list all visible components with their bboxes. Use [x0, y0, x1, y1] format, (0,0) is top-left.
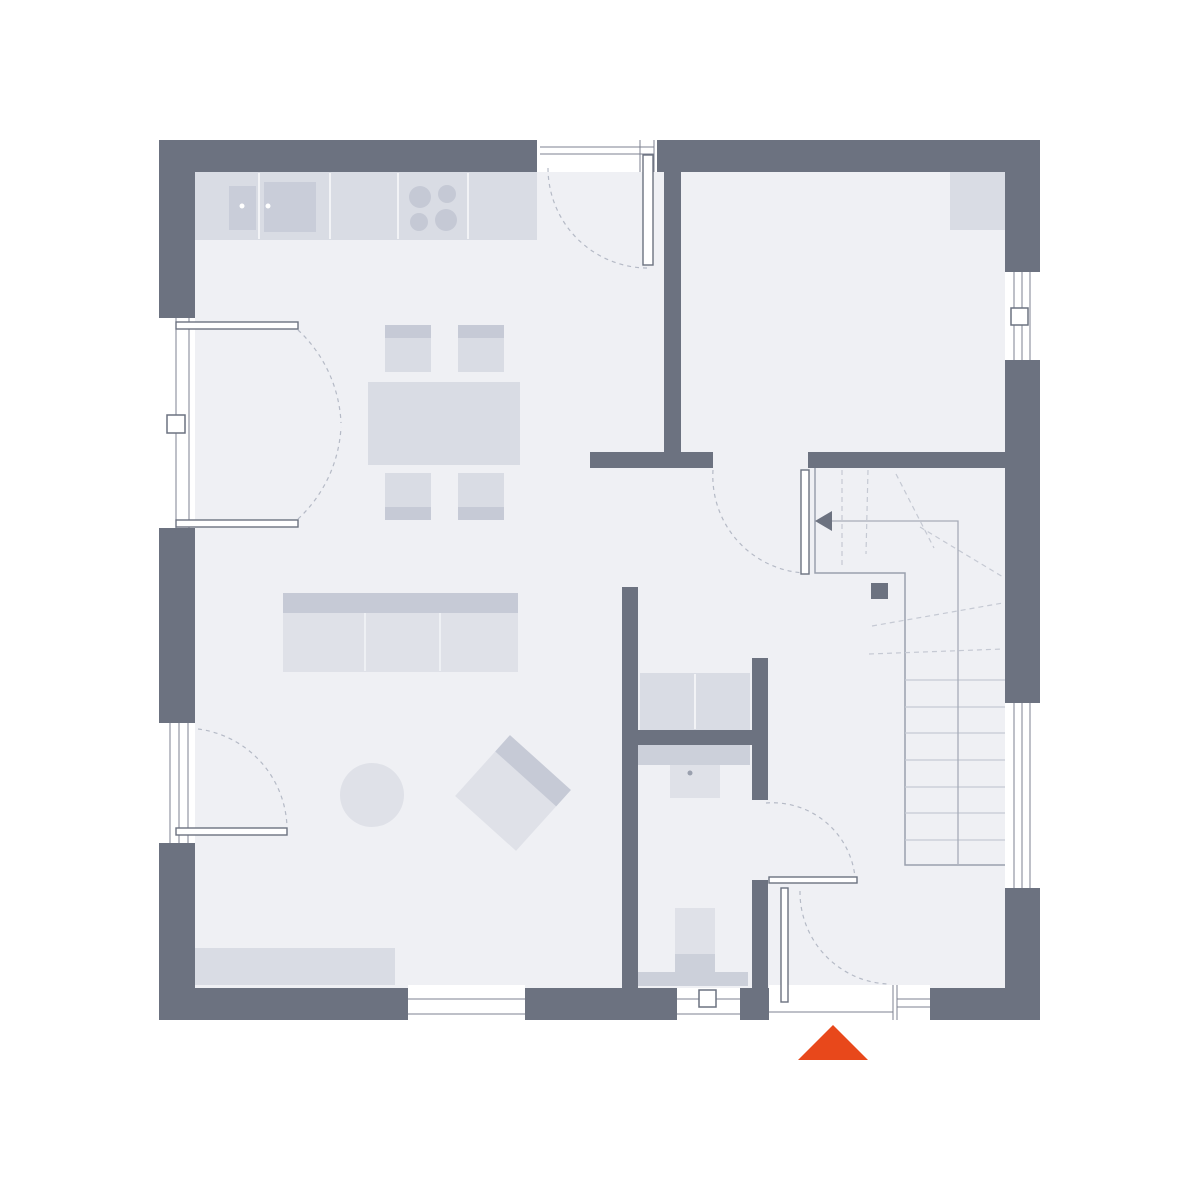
window-right-upper-symbol [1011, 308, 1028, 325]
wall-right-upper [1005, 140, 1040, 272]
window-left-lower [160, 723, 195, 843]
stair-newel-post [871, 583, 888, 599]
cooktop-burner-3 [410, 213, 428, 231]
sink-drain-left [240, 204, 245, 209]
window-wc-symbol [699, 990, 716, 1007]
wc-washbasin [670, 765, 720, 798]
wc-vanity-counter [638, 745, 750, 765]
wc-toilet-bowl [675, 908, 715, 954]
dining-chair-back-bottom-left [385, 507, 431, 520]
round-pouf [340, 763, 404, 827]
wall-living-hall [622, 587, 638, 988]
dining-table [368, 382, 520, 465]
wall-left-middle [159, 528, 195, 723]
top-entry-door-leaf [643, 155, 653, 265]
cooktop-burner-4 [435, 209, 457, 231]
french-door-leaf-bottom [176, 520, 298, 527]
french-door-opening-symbol [167, 415, 185, 433]
wall-bottom-2 [525, 988, 677, 1020]
wall-utility-wc [622, 730, 768, 745]
wall-right-middle [1005, 360, 1040, 703]
wall-wc-right-lower [752, 880, 768, 988]
wall-stub-dining [590, 452, 713, 468]
dining-chair-back-top-right [458, 325, 504, 338]
wall-top-left [159, 140, 537, 172]
dining-chair-back-top-left [385, 325, 431, 338]
cooktop-burner-1 [409, 186, 431, 208]
wc-toilet-cistern [675, 954, 715, 972]
sink-drain-right [266, 204, 271, 209]
cooktop-burner-2 [438, 185, 456, 203]
french-door-leaf-top [176, 322, 298, 329]
floor-area [195, 172, 1005, 988]
terrace-door-opening [408, 985, 525, 1020]
wc-window-sill-band [638, 972, 748, 986]
wall-kitchen-room-divider [664, 172, 681, 452]
floor-plan-page [0, 0, 1200, 1200]
dining-chair-back-bottom-right [458, 507, 504, 520]
sofa-seat [283, 613, 518, 672]
wall-bottom-4 [930, 988, 1040, 1020]
sofa-backrest [283, 593, 518, 613]
wall-left-upper [159, 140, 195, 318]
wall-bottom-3 [740, 988, 769, 1020]
floor-plan [0, 0, 1200, 1200]
sideboard [195, 948, 395, 985]
wc-door-leaf [769, 877, 857, 883]
wall-top-right [657, 140, 1040, 172]
hall-room-door-leaf [801, 470, 809, 574]
wall-wc-right-upper [752, 658, 768, 800]
left-window-leaf [176, 828, 287, 835]
kitchen-sink-basin-right [264, 182, 316, 232]
wall-stairs-top [808, 452, 1005, 468]
window-right-lower [1007, 703, 1041, 888]
wall-bottom-1 [159, 988, 408, 1020]
closet-top-right-room [950, 172, 1007, 230]
entrance-door-opening [769, 985, 930, 1020]
wc-basin-faucet [688, 771, 693, 776]
entrance-door-leaf [781, 888, 788, 1002]
